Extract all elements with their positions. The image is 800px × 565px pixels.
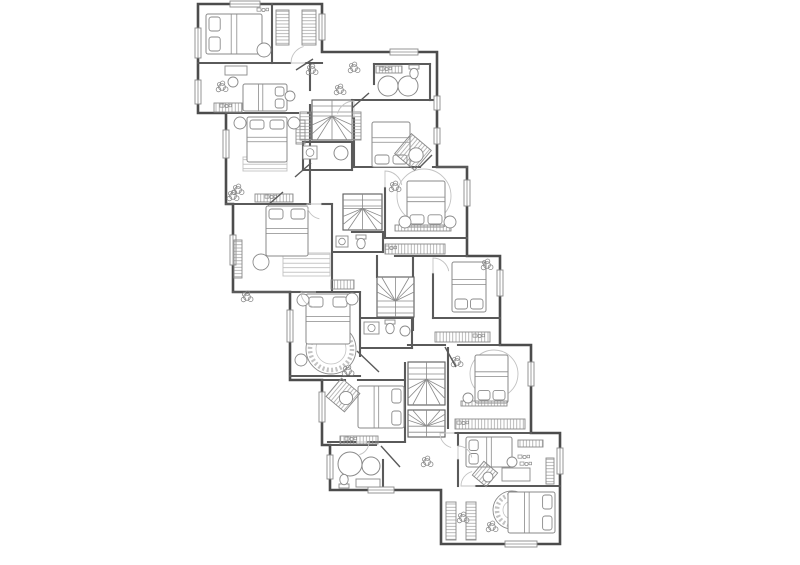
desk	[225, 66, 247, 75]
pillow	[309, 297, 323, 307]
toilet	[385, 320, 395, 334]
pillow	[428, 215, 442, 224]
stool	[288, 117, 300, 129]
stool	[399, 216, 411, 228]
pillow	[478, 390, 490, 400]
pillow	[270, 120, 284, 129]
pillow	[392, 389, 401, 403]
stool	[444, 216, 456, 228]
toilet	[409, 65, 419, 79]
wardrobe	[331, 280, 354, 289]
sink-round	[378, 76, 398, 96]
stool	[507, 457, 517, 467]
desk	[502, 468, 530, 481]
stool	[253, 254, 269, 270]
pillow	[469, 440, 478, 451]
floor-plan	[0, 0, 800, 565]
stool	[228, 77, 238, 87]
pillow	[275, 99, 284, 108]
pillow	[493, 390, 505, 400]
armchair	[409, 148, 423, 162]
stool	[400, 326, 410, 336]
sink	[303, 146, 317, 159]
sink-round	[334, 146, 348, 160]
pillow	[209, 17, 220, 31]
pillow	[275, 87, 284, 96]
sink	[364, 322, 379, 334]
sink-round	[362, 457, 380, 475]
wardrobe	[546, 458, 554, 484]
armchair	[339, 391, 352, 404]
vanity	[356, 479, 380, 487]
pillow	[392, 411, 401, 425]
toilet	[356, 235, 366, 249]
stool	[234, 117, 246, 129]
pillow	[469, 454, 478, 465]
sink-round	[338, 452, 362, 476]
wardrobe	[455, 419, 525, 429]
stool	[285, 91, 295, 101]
pillow	[455, 299, 468, 309]
pillow	[269, 209, 283, 219]
pillow	[375, 155, 389, 164]
wardrobe	[518, 440, 543, 447]
wardrobe	[466, 502, 476, 540]
pillow	[471, 299, 484, 309]
sink	[336, 236, 348, 247]
pillow	[250, 120, 264, 129]
wardrobe	[214, 103, 242, 112]
wardrobe	[302, 10, 316, 45]
pillow	[410, 215, 424, 224]
wardrobe	[276, 10, 289, 45]
wardrobe	[234, 240, 242, 278]
pillow	[543, 495, 552, 509]
wardrobe	[446, 502, 456, 540]
armchair	[483, 472, 493, 482]
pillow	[209, 37, 220, 51]
stool	[463, 393, 473, 403]
toilet	[339, 474, 349, 488]
stool	[295, 354, 307, 366]
pillow	[543, 516, 552, 530]
wardrobe	[352, 112, 361, 140]
floor-plan-canvas	[0, 0, 800, 565]
pillow	[291, 209, 305, 219]
stool	[346, 293, 358, 305]
stool	[257, 43, 271, 57]
pillow	[333, 297, 347, 307]
